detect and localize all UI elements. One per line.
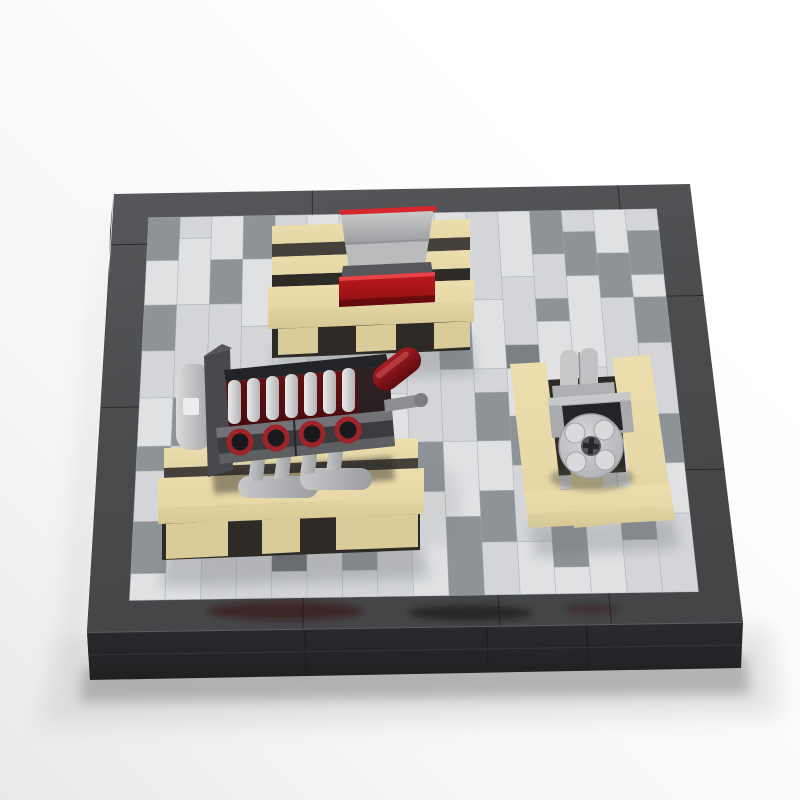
floor-plank bbox=[142, 305, 177, 351]
floor-plank bbox=[480, 490, 518, 542]
v8-engine bbox=[176, 342, 428, 498]
floor-plank bbox=[177, 238, 212, 305]
hub-stud bbox=[566, 452, 586, 472]
pallet-foot bbox=[336, 514, 418, 550]
hub-stud bbox=[565, 423, 585, 443]
hub-stud bbox=[594, 420, 614, 440]
floor-plank bbox=[634, 297, 672, 343]
engine-piston bbox=[228, 380, 241, 424]
floor-plank bbox=[502, 276, 539, 345]
border-reflections-part bbox=[564, 603, 620, 615]
border-reflections-part bbox=[207, 602, 363, 620]
pallet-foot bbox=[356, 324, 396, 352]
pallet-foot bbox=[434, 321, 470, 349]
floor-plank bbox=[147, 217, 181, 261]
lego-diorama-photo bbox=[0, 0, 800, 800]
floor-plank bbox=[597, 253, 634, 298]
photo-stage bbox=[0, 0, 800, 800]
floor-plank bbox=[209, 259, 242, 304]
engine-axle-joint bbox=[414, 393, 428, 407]
floor-plank bbox=[625, 209, 659, 231]
floor-plank bbox=[211, 216, 244, 260]
floor-plank bbox=[243, 215, 276, 259]
floor-plank bbox=[440, 369, 477, 442]
floor-plank bbox=[529, 211, 564, 255]
floor-plank bbox=[498, 211, 534, 277]
crate-stack bbox=[339, 206, 437, 307]
border-seam bbox=[685, 469, 724, 470]
floor-plank bbox=[144, 260, 178, 305]
pallet-foot bbox=[278, 327, 318, 355]
floor-plank bbox=[593, 209, 629, 253]
floor-plank bbox=[474, 369, 509, 393]
floor-plank bbox=[140, 351, 175, 399]
engine-piston bbox=[304, 372, 317, 416]
floor-plank bbox=[137, 398, 173, 447]
machine-hinge-seam bbox=[579, 352, 580, 388]
border-seam bbox=[666, 295, 703, 296]
floor-plank bbox=[477, 441, 514, 491]
floor-plank bbox=[475, 392, 512, 441]
floor-plank bbox=[554, 567, 592, 594]
pallet-foot bbox=[262, 518, 300, 554]
engine-piston bbox=[247, 378, 260, 422]
floor-plank bbox=[482, 542, 520, 595]
engine-piston bbox=[323, 370, 336, 414]
border-seam bbox=[101, 407, 139, 408]
border-seam bbox=[111, 244, 147, 245]
engine-piston bbox=[342, 368, 355, 412]
floor-plank bbox=[532, 254, 568, 299]
floor-plank bbox=[129, 573, 166, 600]
floor-plank bbox=[631, 274, 666, 297]
border-reflections-part bbox=[408, 605, 532, 621]
pallet-foot bbox=[166, 521, 228, 559]
engine-piston bbox=[285, 374, 298, 418]
floor-plank bbox=[536, 298, 570, 321]
engine-piston bbox=[266, 376, 279, 420]
floor-plank bbox=[627, 230, 664, 274]
engine-damper-notch bbox=[183, 398, 199, 415]
floor-plank bbox=[470, 299, 507, 369]
floor-plank bbox=[561, 210, 595, 232]
floor-plank bbox=[563, 231, 599, 276]
floor-plank bbox=[180, 217, 213, 239]
gray-crate bbox=[341, 211, 433, 244]
